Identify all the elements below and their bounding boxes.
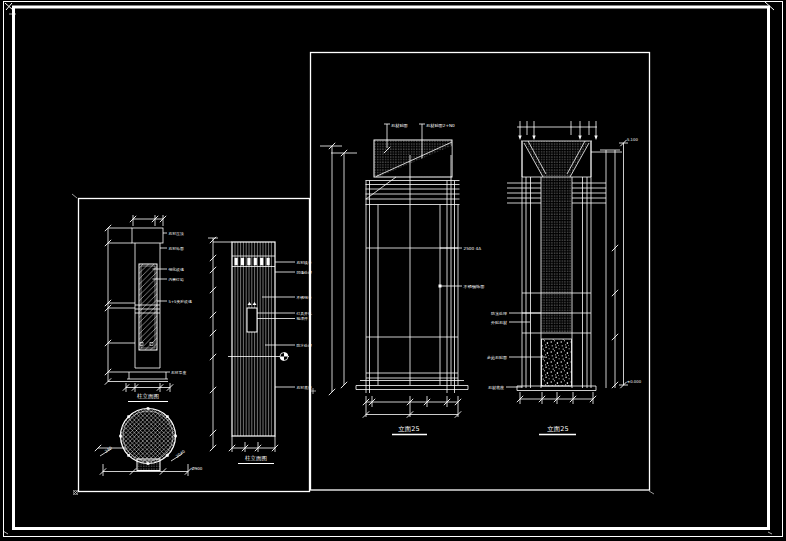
col2-center-hatch-strip bbox=[542, 177, 572, 333]
elev2-dentil-band bbox=[235, 258, 270, 266]
right-sheet-border bbox=[311, 53, 650, 491]
elev2-flute-lines bbox=[235, 242, 271, 436]
elev2-label-2: 凹缝处理 bbox=[297, 270, 312, 275]
elev2-label-7: 石材底座 bbox=[297, 385, 312, 390]
col2-stone-hatch bbox=[542, 339, 572, 386]
elev1-cap bbox=[132, 228, 163, 243]
elev2-center-detail bbox=[247, 308, 257, 332]
elev2-label-1: 石材线条 bbox=[297, 260, 312, 265]
corner-mark-bottom-right bbox=[768, 532, 772, 534]
col1-elevation: 石材贴面 石材贴面2+N0 bbox=[320, 123, 485, 435]
elev1-label-5: 5+5夹胶玻璃 bbox=[169, 299, 192, 304]
col2-caption: 立面25 bbox=[547, 425, 568, 433]
elev1-label-4: 内置灯箱 bbox=[169, 277, 184, 282]
col2-cap-hatch bbox=[524, 141, 589, 177]
plan-dim-rot-right: 2040 bbox=[175, 449, 187, 459]
plan-view: Ø900 240 2040 bbox=[73, 407, 203, 495]
cad-drawing-canvas: 石材贴面 石材贴面2+N0 bbox=[0, 0, 786, 541]
col2-elev-mark-bottom: ±0.000 bbox=[627, 379, 642, 384]
elev2-label-3: 不锈钢条 bbox=[297, 295, 312, 300]
right-sheet-corner-artifact bbox=[649, 491, 654, 494]
plan-dim-right: Ø900 bbox=[192, 466, 203, 471]
col2-left-label-1: 防水处理 bbox=[491, 311, 507, 316]
elev1-label-1: 石材压顶 bbox=[169, 231, 184, 236]
corner-mark-top-left bbox=[5, 3, 13, 10]
left-sheet-corner-artifact bbox=[72, 194, 77, 198]
elev2-label-5: 预埋件 bbox=[297, 316, 309, 321]
elev2-label-6: 防水处理 bbox=[297, 343, 312, 348]
sheet-corner-flower-mark bbox=[73, 490, 78, 495]
elev1-caption: 柱立面图 bbox=[137, 393, 159, 400]
elev1-label-6: 石材基座 bbox=[171, 370, 186, 375]
elev1-label-3: 钢化玻璃 bbox=[168, 267, 184, 272]
elev1-label-2: 石材饰面 bbox=[169, 246, 184, 251]
elev1-glass-panel bbox=[139, 264, 157, 350]
col2-elevation: 5.100 ±0.000 防水处理 外贴石材 蘑菇石贴面 石材底座 立面25 bbox=[487, 121, 642, 435]
col2-left-label-3: 蘑菇石贴面 bbox=[487, 355, 507, 361]
col1-top-label-1: 石材贴面 bbox=[391, 123, 409, 129]
col1-side-label-1: 2500 4A bbox=[464, 246, 482, 251]
outer-frame bbox=[3, 2, 783, 537]
plan-dim-rot-left: 240 bbox=[104, 445, 113, 454]
elev1-column: 石材压顶 石材饰面 钢化玻璃 内置灯箱 5+5夹胶玻璃 石材基座 柱立面图 bbox=[105, 215, 192, 402]
elev2-label-4: 灯具开孔 bbox=[296, 311, 312, 316]
cad-drawing-svg: 石材贴面 石材贴面2+N0 bbox=[0, 0, 786, 541]
col2-left-label-4: 石材底座 bbox=[488, 385, 504, 391]
col1-side-label-2: 不锈钢饰面 bbox=[463, 284, 486, 289]
col1-caption: 立面25 bbox=[398, 425, 419, 433]
col1-top-label-2: 石材贴面2+N0 bbox=[426, 123, 455, 129]
col2-elev-mark-top: 5.100 bbox=[627, 137, 638, 142]
col2-left-label-2: 外贴石材 bbox=[491, 320, 507, 326]
elev2-column: 石材线条 凹缝处理 不锈钢条 灯具开孔 预埋件 防水处理 石材底座 柱立面图 bbox=[208, 237, 312, 464]
elev2-caption: 柱立面图 bbox=[245, 455, 267, 462]
outer-thin-border bbox=[4, 2, 783, 537]
